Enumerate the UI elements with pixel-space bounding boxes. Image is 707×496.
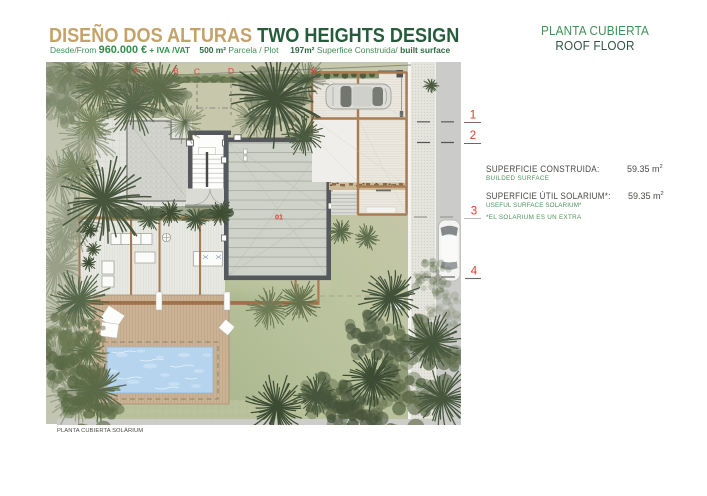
svg-text:E: E	[311, 66, 317, 76]
svg-text:C: C	[194, 67, 200, 77]
svg-text:B: B	[173, 66, 179, 76]
svg-text:01: 01	[275, 213, 283, 222]
svg-text:A: A	[133, 66, 139, 76]
svg-text:3: 3	[471, 206, 477, 218]
svg-text:1: 1	[470, 110, 476, 122]
svg-text:D: D	[228, 66, 234, 76]
svg-text:2: 2	[470, 130, 476, 142]
svg-text:4: 4	[471, 266, 478, 278]
